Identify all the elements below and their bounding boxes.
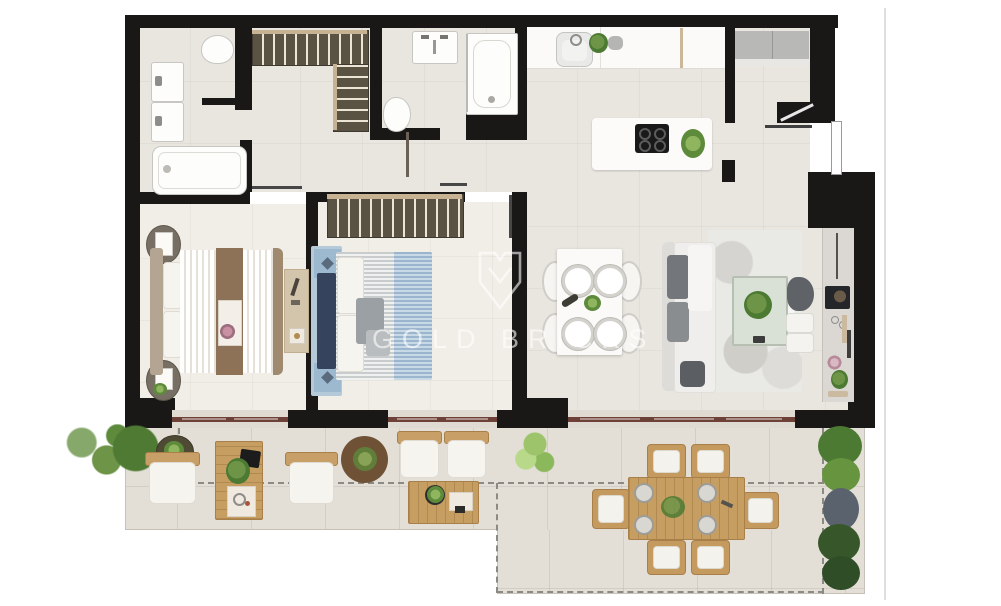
wall-segment [810, 15, 835, 123]
tray-white [227, 486, 256, 517]
bed-tray [218, 300, 242, 346]
door-bathroom-2 [440, 183, 467, 186]
wall-segment [125, 15, 140, 428]
wall-segment [202, 98, 242, 105]
window-bedroom-2 [388, 410, 497, 428]
plate [697, 483, 717, 503]
bathroom-sink [151, 62, 184, 102]
wardrobe-rail [327, 194, 462, 199]
kitchen-sink [556, 32, 593, 67]
wall-segment [808, 172, 875, 228]
wardrobe-rail [252, 30, 367, 34]
pouf [786, 333, 814, 353]
outdoor-dining-chair [647, 444, 686, 479]
bed-throw [273, 248, 283, 375]
hedge-plant [822, 458, 860, 492]
beanbag [787, 277, 814, 311]
terrace-lounge-chair [397, 431, 440, 477]
terrace-edge [497, 593, 865, 594]
bed-duvet [243, 250, 273, 373]
plant [512, 420, 558, 480]
kitchen-cabinet-edge [680, 28, 683, 68]
place-setting [594, 265, 626, 297]
kitchen-faucet-fixture [608, 36, 623, 50]
plant [744, 291, 772, 319]
plate [697, 515, 717, 535]
window-living-room [568, 410, 795, 428]
terrace-boundary-dash [497, 591, 824, 593]
bed-headboard [317, 273, 336, 369]
door-master-bedroom [252, 186, 302, 189]
wall-segment [722, 160, 735, 182]
plate [634, 483, 654, 503]
outdoor-dining-chair [691, 444, 730, 479]
tray-black [455, 506, 465, 513]
entry-threshold [765, 125, 812, 128]
master-bed [150, 248, 283, 375]
terrace-coffee-table [408, 481, 479, 524]
tv-console [822, 228, 854, 402]
hallway-wardrobe [252, 30, 369, 66]
decor-tray [828, 391, 848, 397]
plant [589, 33, 608, 53]
plant [681, 129, 705, 158]
bathroom2-vanity [412, 31, 458, 64]
console-decor-rod [836, 233, 838, 279]
toilet [383, 97, 411, 132]
outdoor-dining-chair [691, 540, 730, 575]
bed-throw-blue [394, 252, 432, 380]
bed-headboard [150, 248, 163, 375]
hallway-wardrobe [333, 64, 369, 132]
plant [831, 370, 848, 389]
outdoor-dining-chair [647, 540, 686, 575]
plate [634, 515, 654, 535]
boundary-line [884, 8, 886, 600]
bathroom-sink [151, 102, 184, 142]
terrace-lounge-chair [444, 431, 487, 477]
entry-door [831, 121, 842, 175]
bedroom-desk [284, 269, 309, 353]
flowers [220, 324, 235, 339]
utility-counter [735, 59, 809, 66]
flowers [827, 355, 842, 370]
hedge-plant [822, 556, 860, 590]
table-centerpiece [584, 295, 601, 311]
plant [427, 486, 444, 503]
bedroom2-bed [336, 252, 432, 380]
sofa-cushion [667, 302, 689, 342]
decor-vase [847, 330, 851, 358]
terrace-boundary-dash [496, 483, 498, 593]
door-bedroom-2 [509, 195, 512, 238]
place-setting [562, 265, 594, 297]
toilet [201, 35, 234, 64]
terrace-edge [864, 428, 865, 594]
shower [466, 33, 518, 115]
hall-console [406, 132, 409, 177]
cooktop [635, 124, 669, 153]
bed-duvet [180, 250, 216, 373]
wall-segment [725, 27, 735, 123]
terrace-edge [125, 529, 497, 530]
pouf [786, 313, 814, 333]
outdoor-dining-table [628, 477, 745, 540]
utility-appliances [735, 31, 809, 59]
terrace-side-table [215, 441, 263, 520]
tv [825, 286, 850, 309]
terrace-armchair [285, 452, 336, 503]
table-centerpiece [661, 496, 685, 518]
bathtub [152, 146, 247, 195]
decor-glass [831, 316, 839, 324]
sofa-chaise [688, 245, 712, 311]
cutlery [721, 500, 734, 509]
floor-plan: GOLD BRICKS [0, 0, 1001, 606]
outdoor-dining-chair [592, 489, 630, 529]
sofa-cushion [667, 255, 689, 299]
remote [753, 336, 765, 343]
outdoor-dining-chair [742, 492, 779, 529]
round-outdoor-rug [341, 436, 388, 483]
wall-segment [370, 27, 382, 140]
window-master-bedroom [172, 410, 288, 428]
shower-glass [466, 34, 468, 112]
ottoman [680, 361, 705, 387]
bedroom2-wardrobe [327, 194, 464, 238]
terrace-armchair [145, 452, 198, 503]
watermark-logo [476, 250, 524, 312]
watermark-text: GOLD BRICKS [372, 324, 656, 355]
plant [226, 458, 250, 484]
wardrobe-rail [333, 64, 337, 130]
